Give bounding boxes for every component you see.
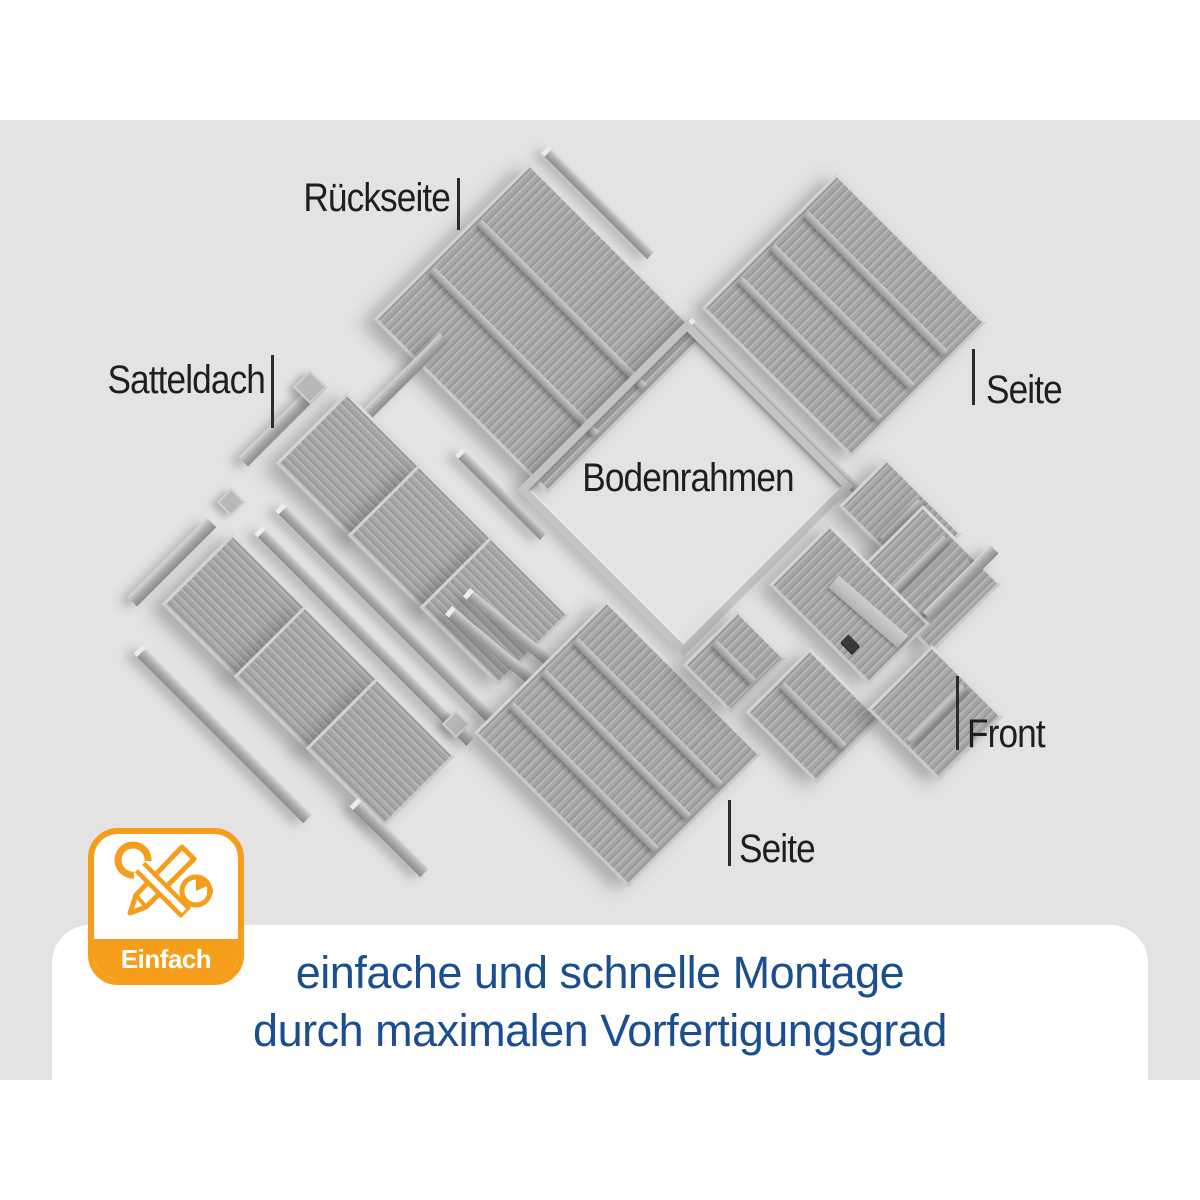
einfach-badge: Einfach — [88, 828, 244, 985]
tick-seite-bottom — [728, 800, 731, 866]
label-rueckseite: Rückseite — [186, 176, 450, 220]
product-image-page: Rückseite Satteldach Bodenrahmen Seite F… — [0, 0, 1200, 1200]
assembly-tools-icon — [94, 834, 238, 939]
tick-satteldach — [271, 355, 274, 428]
label-seite-right: Seite — [986, 368, 1127, 412]
label-front: Front — [967, 712, 1108, 756]
label-seite-bottom: Seite — [739, 827, 880, 871]
label-bodenrahmen: Bodenrahmen — [547, 456, 829, 500]
door-handle — [841, 634, 860, 653]
tick-seite-right — [972, 349, 975, 405]
tick-rueckseite — [457, 178, 460, 230]
badge-label: Einfach — [94, 939, 238, 979]
caption-line-2: durch maximalen Vorfertigungsgrad — [52, 1002, 1148, 1060]
tick-front — [956, 676, 959, 750]
clock-pie-icon — [182, 877, 213, 905]
label-satteldach: Satteldach — [32, 358, 265, 402]
